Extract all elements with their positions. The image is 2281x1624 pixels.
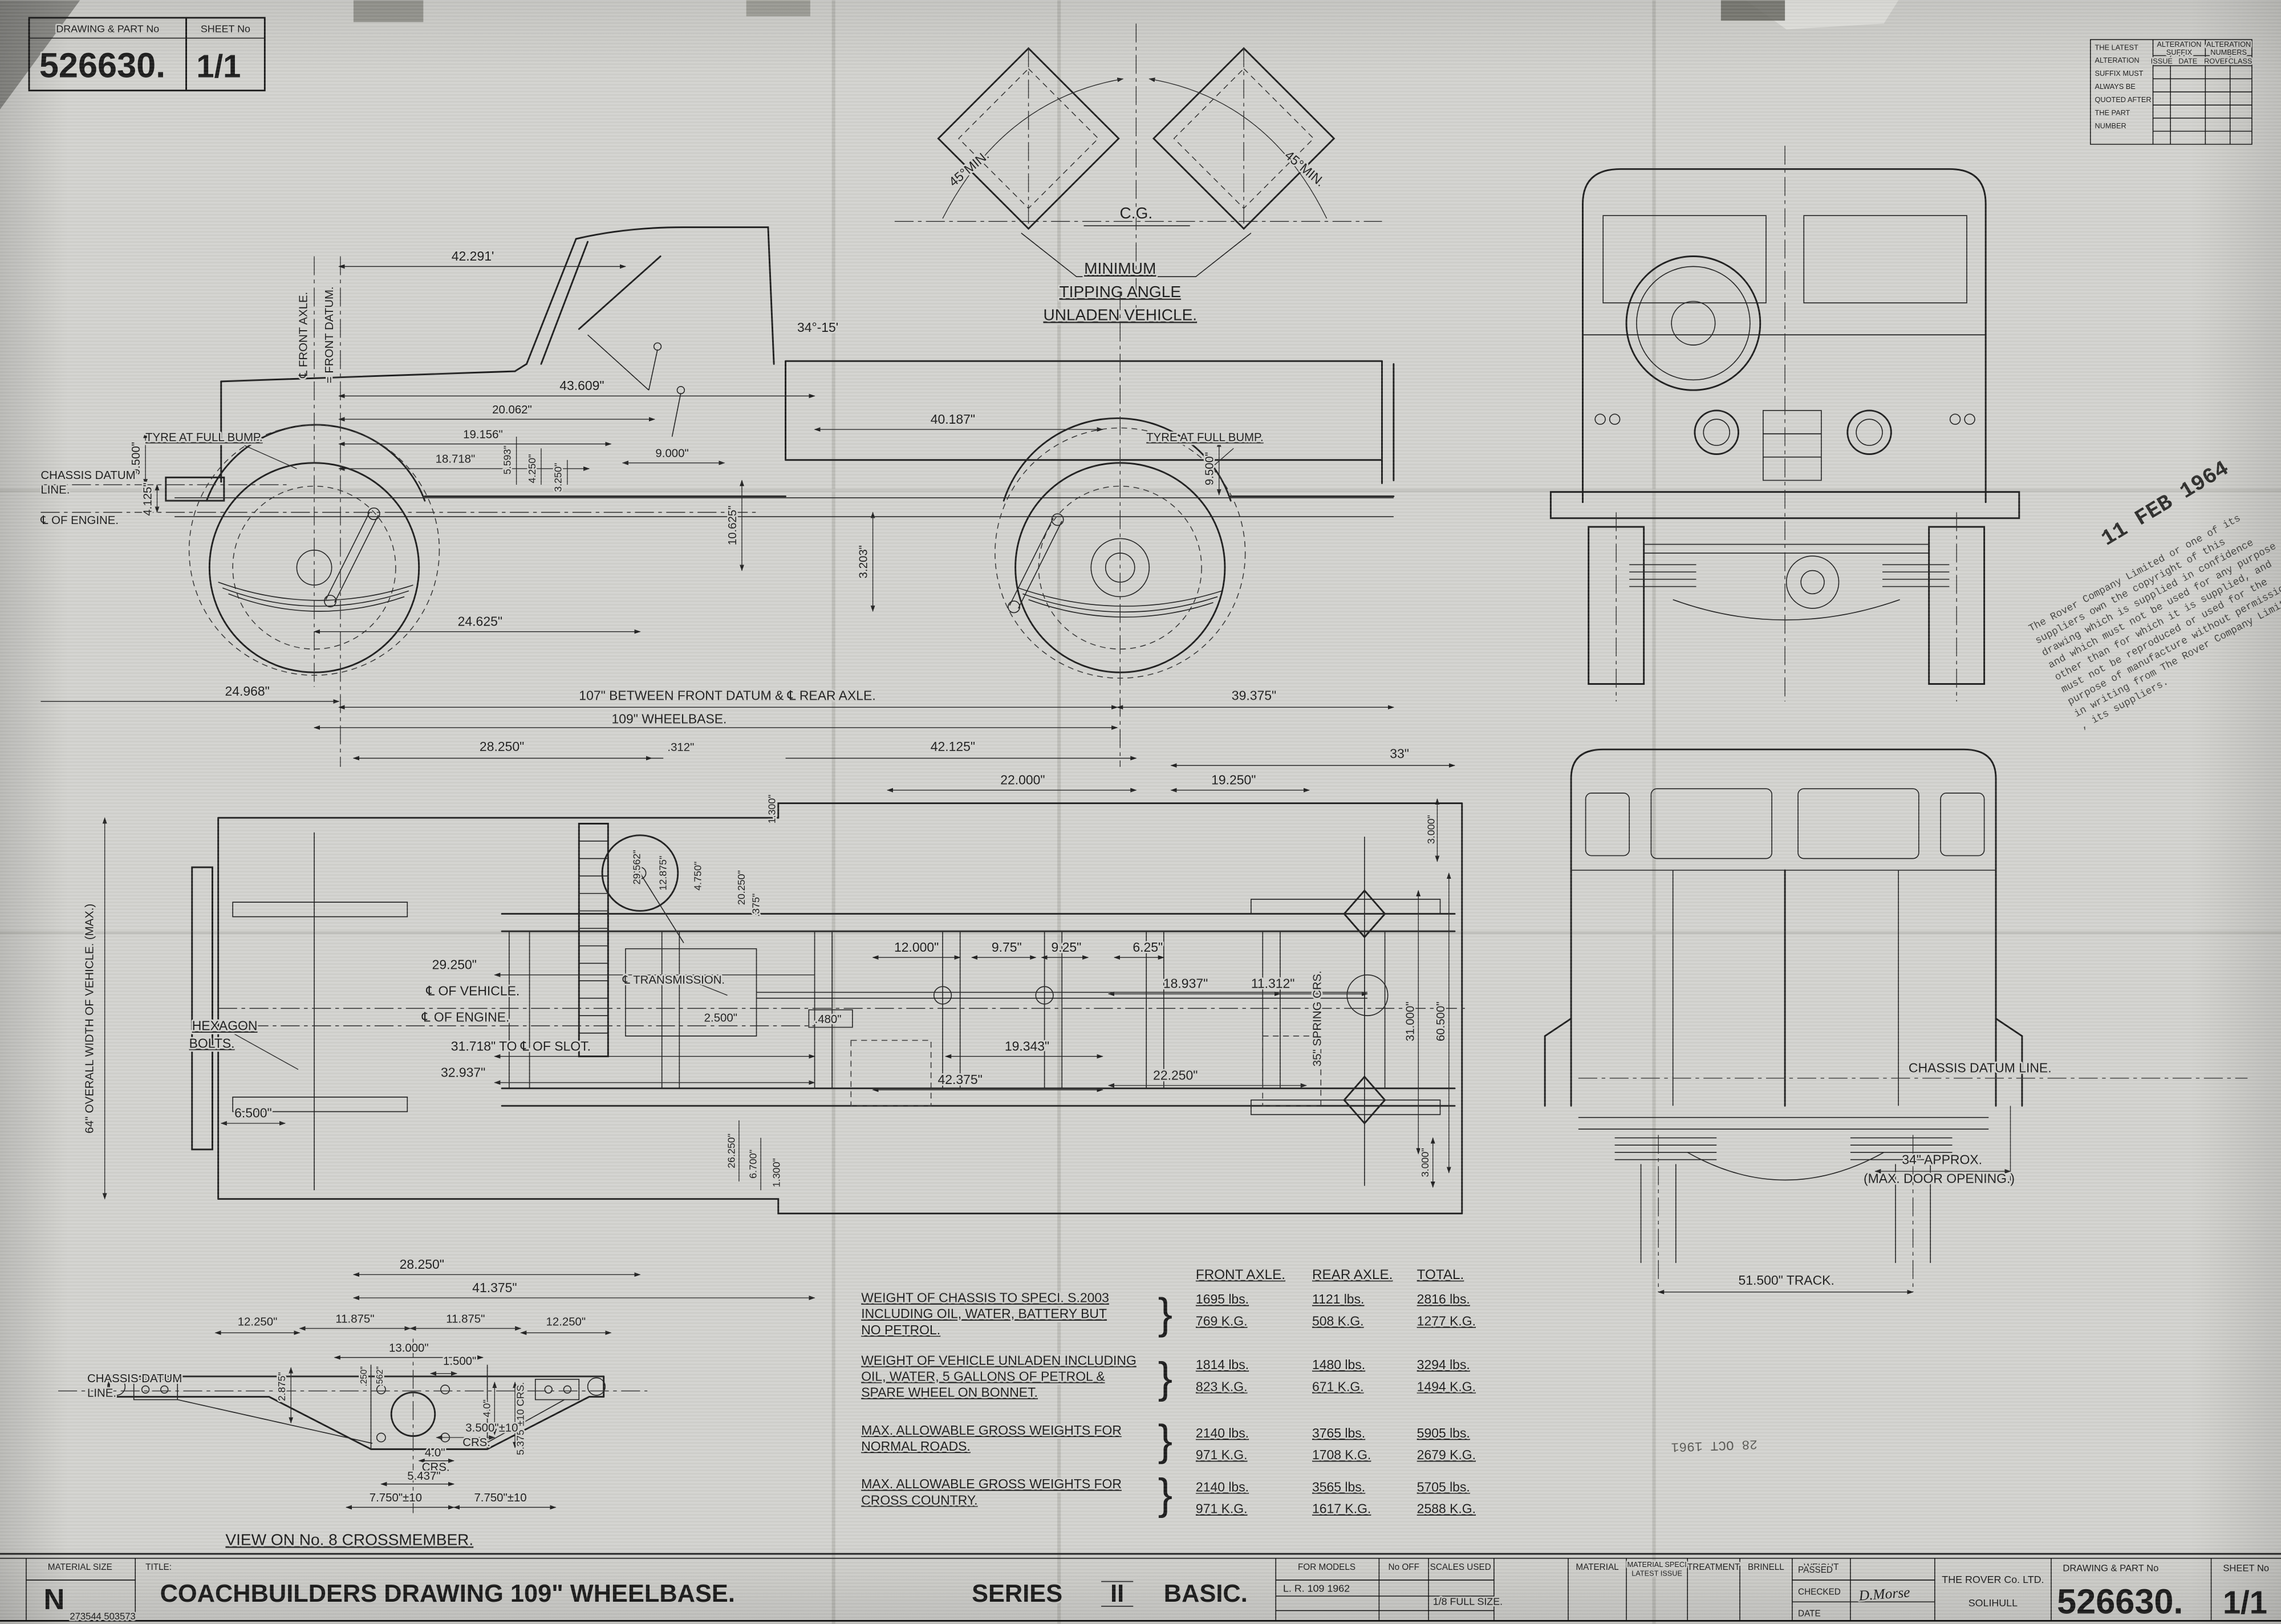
material-spec-label: LATEST ISSUE — [1631, 1569, 1682, 1577]
dim-label: 5.375"±10 CRS. — [514, 1382, 526, 1455]
dim-label: 60.500" — [1435, 1002, 1447, 1042]
dim-label: 12.875" — [657, 856, 668, 891]
weight-table: FRONT AXLE. REAR AXLE. TOTAL. WEIGHT OF … — [861, 1267, 1476, 1519]
tipping-caption: MINIMUM — [1084, 259, 1156, 277]
chassis-datum-label: CHASSIS DATUM — [87, 1373, 182, 1385]
weight-value: 2140 lbs. — [1196, 1426, 1249, 1440]
copyright-stamp: The Rover Company Limited or one of its … — [2027, 504, 2281, 732]
hexagon-bolts-label: BOLTS. — [189, 1036, 235, 1050]
alteration-note-line: ALTERATION — [2095, 56, 2139, 64]
dim-label: 42.375" — [938, 1072, 983, 1087]
dim-label: 3.203" — [857, 545, 870, 578]
dim-label: 9.75" — [992, 940, 1022, 955]
weight-value: 971 K.G. — [1196, 1447, 1248, 1462]
treatment-label: TREATMENT — [1687, 1562, 1740, 1572]
date-stamp-1961: 28 OCT 1961 — [1671, 1436, 1758, 1454]
material-size-label: MATERIAL SIZE — [48, 1562, 112, 1572]
dim-label: 28.250" — [400, 1257, 444, 1272]
door-opening-label: 34" APPROX. — [1902, 1152, 1982, 1167]
plan-view-labels: 64" OVERALL WIDTH OF VEHICLE. (MAX.) 42.… — [83, 739, 1447, 1295]
alteration-suffix-header: SUFFIX — [2166, 48, 2193, 56]
weight-col-header: REAR AXLE. — [1312, 1267, 1393, 1282]
alteration-note-line: SUFFIX MUST — [2095, 69, 2143, 78]
checked-signature: D.Morse — [1858, 1584, 1911, 1603]
brace: } — [1158, 1416, 1173, 1465]
front-elevation-view — [1551, 146, 2019, 701]
dim-label: 4.750" — [692, 862, 704, 891]
dim-label: 43.609" — [559, 378, 604, 393]
dim-label: 2.500" — [704, 1012, 737, 1024]
scales-value: 1/8 FULL SIZE. — [1433, 1595, 1503, 1607]
blueprint-canvas: DRAWING & PART No SHEET No 526630. 1/1 T… — [0, 0, 2281, 1624]
part-no-value: 526630. — [2057, 1582, 2183, 1621]
weight-row-desc: OIL, WATER, 5 GALLONS OF PETROL & — [861, 1369, 1105, 1383]
dim-label: 12.250" — [546, 1316, 586, 1329]
dim-label: 109" WHEELBASE. — [612, 711, 727, 726]
dim-label: 4.0" — [425, 1447, 445, 1459]
dim-label: 3.500"±10 — [465, 1422, 518, 1435]
dim-label: 29.562" — [631, 850, 642, 884]
dim-label: 20.062" — [492, 404, 532, 416]
dim-label: .375" — [750, 894, 762, 917]
dim-label: 18.718" — [436, 453, 476, 466]
dim-label: CRS. — [462, 1436, 490, 1449]
weight-value: 2140 lbs. — [1196, 1479, 1249, 1494]
series-suffix: BASIC. — [1164, 1580, 1248, 1607]
plan-view: 64" OVERALL WIDTH OF VEHICLE. (MAX.) 42.… — [83, 739, 1469, 1298]
dim-label: 3.000" — [1419, 1148, 1431, 1177]
weight-row-desc: CROSS COUNTRY. — [861, 1492, 977, 1507]
weight-value: 1617 K.G. — [1312, 1501, 1371, 1516]
weight-col-header: FRONT AXLE. — [1196, 1267, 1285, 1282]
dim-label: 29.250" — [432, 957, 477, 972]
dim-label: .250" — [359, 1366, 369, 1386]
company-city: SOLIHULL — [1969, 1597, 2018, 1609]
door-opening-label: (MAX. DOOR OPENING.) — [1864, 1171, 2015, 1186]
weight-value: 1814 lbs. — [1196, 1357, 1249, 1372]
dim-label: .562" — [375, 1366, 385, 1386]
dim-label: 19.250" — [1211, 773, 1256, 787]
dim-label: 1.300" — [770, 1158, 782, 1187]
weight-value: 671 K.G. — [1312, 1379, 1364, 1394]
weight-value: 2679 K.G. — [1417, 1447, 1476, 1462]
weight-value: 3565 lbs. — [1312, 1479, 1365, 1494]
dim-label: .480" — [815, 1013, 842, 1026]
dim-label: 2.875" — [276, 1372, 287, 1401]
track-label: 51.500" TRACK. — [1738, 1273, 1834, 1288]
dim-label: 34°-15' — [797, 320, 838, 335]
dim-label: 31.000" — [1405, 1002, 1417, 1042]
brace: } — [1158, 1470, 1173, 1519]
dim-label: 22.000" — [1000, 773, 1045, 787]
chassis-datum-label: CHASSIS DATUM — [40, 469, 135, 482]
alteration-note-line: ALWAYS BE — [2095, 82, 2135, 91]
weight-row-desc: MAX. ALLOWABLE GROSS WEIGHTS FOR — [861, 1476, 1122, 1491]
weight-value: 5905 lbs. — [1417, 1426, 1470, 1440]
dim-label: 11.875" — [335, 1313, 374, 1325]
weight-value: 971 K.G. — [1196, 1501, 1248, 1516]
dim-label: 5.437" — [407, 1470, 440, 1483]
brinell-label: BRINELL — [1748, 1562, 1784, 1572]
weight-value: 1695 lbs. — [1196, 1292, 1249, 1306]
dim-label: 9.000" — [655, 448, 688, 460]
paper-creases — [0, 1, 2281, 1624]
dim-label: 4.0" — [481, 1399, 493, 1417]
tipping-angle-diagram: 45°MIN. 45°MIN. C.G. MINIMUM TIPPING ANG… — [895, 23, 1382, 327]
dim-label: 22.250" — [1153, 1067, 1198, 1082]
front-axle-centerline-label: ℄ FRONT AXLE. — [297, 292, 310, 379]
alteration-numbers-header: NUMBERS — [2210, 48, 2247, 56]
dim-label: 32.937" — [441, 1065, 485, 1079]
weight-value: 1277 K.G. — [1417, 1314, 1476, 1329]
series-numeral: II — [1110, 1580, 1124, 1607]
rear-elevation-view: CHASSIS DATUM LINE. 34" APPROX. (MAX. DO… — [1545, 749, 2247, 1292]
dim-label: 12.250" — [238, 1316, 278, 1329]
weight-value: 2816 lbs. — [1417, 1292, 1470, 1306]
alteration-table: THE LATEST ALTERATION SUFFIX MUST ALWAYS… — [2091, 39, 2252, 144]
for-models-label: FOR MODELS — [1298, 1562, 1355, 1572]
alteration-numbers-header: ALTERATION — [2206, 40, 2251, 48]
dim-label: 107" BETWEEN FRONT DATUM & ℄ REAR AXLE. — [579, 688, 875, 703]
dim-label: 39.375" — [1232, 688, 1276, 703]
weight-value: 1708 K.G. — [1312, 1447, 1371, 1462]
overall-width-label: 64" OVERALL WIDTH OF VEHICLE. (MAX.) — [83, 904, 96, 1134]
plan-view-dims — [105, 758, 1455, 1298]
dim-label: 26.250" — [725, 1134, 737, 1168]
material-label: MATERIAL — [1576, 1562, 1618, 1572]
for-models-value: L. R. 109 1962 — [1283, 1582, 1350, 1594]
weight-value: 3294 lbs. — [1417, 1357, 1470, 1372]
alteration-col-date: DATE — [2178, 56, 2197, 65]
material-spec-label: MATERIAL SPECI — [1627, 1560, 1687, 1569]
weight-row-desc: NORMAL ROADS. — [861, 1439, 971, 1454]
corner-sheet-label: SHEET No — [201, 23, 250, 35]
weight-value: 2588 K.G. — [1417, 1501, 1476, 1516]
dim-label: 5.593" — [501, 445, 513, 474]
title-label: TITLE: — [145, 1562, 172, 1572]
tyre-bump-label: TYRE AT FULL BUMP. — [145, 431, 262, 444]
dim-label: 24.968" — [225, 684, 270, 699]
dim-label: 7.750"±10 — [474, 1492, 526, 1504]
dim-label: 3.250" — [553, 463, 564, 492]
chassis-datum-label: LINE. — [87, 1387, 116, 1400]
crossmember-art — [58, 1338, 647, 1513]
alteration-col-rover: ROVER — [2204, 56, 2230, 65]
alteration-col-class: CLASS — [2229, 56, 2252, 65]
weight-value: 769 K.G. — [1196, 1314, 1248, 1329]
dim-label: 42.125" — [931, 739, 975, 754]
corner-part-no: 526630. — [39, 46, 165, 85]
dim-label: 10.625" — [726, 506, 739, 546]
dim-label: 9.25" — [1051, 940, 1081, 955]
chassis-datum-label: LINE. — [40, 484, 70, 496]
series-word: SERIES — [972, 1580, 1062, 1607]
part-no-label: DRAWING & PART No — [2063, 1563, 2158, 1574]
blueprint-sheet: DRAWING & PART No SHEET No 526630. 1/1 T… — [0, 0, 2281, 1624]
dim-label: 6.25" — [1133, 940, 1163, 955]
drawing-title: COACHBUILDERS DRAWING 109" WHEELBASE. — [160, 1580, 735, 1607]
weight-row-desc: WEIGHT OF VEHICLE UNLADEN INCLUDING — [861, 1353, 1137, 1367]
crossmember-caption: VIEW ON No. 8 CROSSMEMBER. — [225, 1531, 473, 1549]
dim-label: 20.250" — [736, 870, 747, 905]
dim-label: 19.343" — [1005, 1038, 1049, 1053]
alteration-col-issue: ISSUE — [2151, 56, 2173, 65]
passed-label: PASSED — [1798, 1565, 1833, 1575]
weight-value: 1494 K.G. — [1417, 1379, 1476, 1394]
weight-col-header: TOTAL. — [1417, 1267, 1464, 1282]
scales-label: SCALES USED — [1430, 1562, 1491, 1572]
dim-label: 19.156" — [463, 428, 503, 441]
corner-part-label: DRAWING & PART No — [56, 23, 159, 35]
alteration-suffix-header: ALTERATION — [2157, 40, 2201, 48]
dim-label: 18.937" — [1163, 976, 1208, 991]
weight-row-desc: SPARE WHEEL ON BONNET. — [861, 1385, 1038, 1400]
dim-label: 28.250" — [480, 739, 524, 754]
weight-value: 508 K.G. — [1312, 1314, 1364, 1329]
alteration-note-line: THE LATEST — [2095, 43, 2138, 51]
corner-sheet-no: 1/1 — [196, 48, 241, 84]
title-block: MATERIAL SIZE N 273544 503573 TITLE: COA… — [0, 1554, 2281, 1622]
material-size-value: N — [44, 1583, 65, 1615]
tyre-bump-label: TYRE AT FULL BUMP. — [1146, 431, 1263, 444]
alteration-note-line: QUOTED AFTER — [2095, 95, 2151, 104]
dim-label: 6.500" — [234, 1106, 272, 1120]
dim-label: 11.312" — [1251, 976, 1295, 991]
brace: } — [1158, 1290, 1173, 1338]
dim-label: 41.375" — [472, 1280, 517, 1295]
dim-label: 4.250" — [526, 454, 538, 483]
dim-label: 24.625" — [458, 614, 502, 628]
dim-label: 3.000" — [1425, 815, 1436, 844]
weight-value: 823 K.G. — [1196, 1379, 1248, 1394]
dim-label: 1.300" — [766, 794, 778, 823]
sheet-no-value: 1/1 — [2223, 1585, 2267, 1621]
company-name: THE ROVER Co. LTD. — [1942, 1574, 2044, 1585]
weight-value: 5705 lbs. — [1417, 1479, 1470, 1494]
weight-row-desc: NO PETROL. — [861, 1322, 940, 1337]
weight-row-desc: WEIGHT OF CHASSIS TO SPECI. S.2003 — [861, 1290, 1109, 1305]
hexagon-bolts-label: HEXAGON — [192, 1018, 258, 1033]
dim-label: 11.875" — [446, 1313, 485, 1325]
plan-view-art — [192, 803, 1470, 1213]
weight-row-desc: MAX. ALLOWABLE GROSS WEIGHTS FOR — [861, 1423, 1122, 1438]
engine-centerline-label: ℄ OF ENGINE. — [40, 514, 119, 527]
crossmember-view: CHASSIS DATUM LINE. 12.250" 11.875" 11.8… — [58, 1313, 647, 1548]
vehicle-centerline-label: ℄ OF VEHICLE. — [425, 983, 519, 998]
checked-label: CHECKED — [1798, 1587, 1841, 1597]
dim-label: 6.700" — [748, 1150, 759, 1179]
cg-label: C.G. — [1120, 204, 1153, 222]
weight-value: 1121 lbs. — [1312, 1292, 1364, 1306]
front-datum-label: = FRONT DATUM. — [323, 286, 336, 383]
date-label: DATE — [1798, 1609, 1821, 1619]
alteration-note-line: THE PART — [2095, 108, 2130, 117]
engine-centerline-label: ℄ OF ENGINE. — [421, 1009, 510, 1024]
masking-tape — [354, 1, 1785, 22]
weight-value: 3765 lbs. — [1312, 1426, 1365, 1440]
weight-value: 1480 lbs. — [1312, 1357, 1365, 1372]
chassis-datum-label: CHASSIS DATUM LINE. — [1909, 1061, 2052, 1075]
no-off-label: No OFF — [1389, 1562, 1419, 1572]
spring-crs-label: 35" SPRING CRS. — [1311, 971, 1324, 1066]
alteration-note-line: NUMBER — [2095, 121, 2126, 130]
sheet-no-label: SHEET No — [2223, 1563, 2269, 1574]
dim-label: 13.000" — [389, 1342, 429, 1354]
brace: } — [1158, 1354, 1173, 1402]
dim-label: 31.718" TO ℄ OF SLOT. — [451, 1038, 591, 1053]
dim-label: 1.500" — [443, 1355, 476, 1367]
dim-label: 9.500" — [1204, 452, 1216, 485]
dim-label: 4.125" — [141, 482, 154, 515]
dim-label: 42.291' — [452, 249, 494, 263]
dim-label: 33" — [1390, 746, 1409, 761]
dim-label: 12.000" — [894, 940, 939, 955]
dim-label: .312" — [667, 741, 694, 754]
dim-label: 7.750"±10 — [370, 1492, 422, 1504]
transmission-centerline-label: ℄ TRANSMISSION. — [622, 974, 725, 986]
side-elevation-labels: 42.291' 34°-15' 43.609" 20.062" 19.156" … — [40, 249, 1276, 754]
corner-title-box: DRAWING & PART No SHEET No 526630. 1/1 — [29, 18, 265, 91]
dim-label: 40.187" — [931, 412, 975, 427]
ref-numbers: 273544 503573 — [70, 1611, 135, 1622]
weight-row-desc: INCLUDING OIL, WATER, BATTERY BUT — [861, 1306, 1107, 1321]
